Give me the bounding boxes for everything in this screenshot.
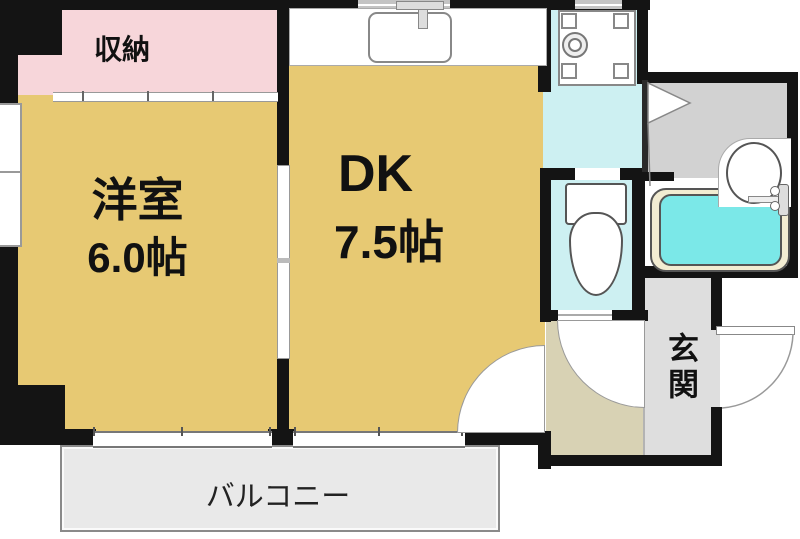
slider-tick xyxy=(212,91,214,101)
bathroom-door-swing xyxy=(645,78,697,190)
dk-size: 7.5帖 xyxy=(334,206,444,272)
wall-segment xyxy=(632,168,645,322)
pillar xyxy=(8,385,65,437)
window-tick xyxy=(93,427,95,436)
pan-corner xyxy=(561,13,577,29)
western-room-size: 6.0帖 xyxy=(25,224,250,285)
wall-segment xyxy=(711,277,722,330)
closet-sliding-door xyxy=(53,92,278,102)
wall-segment xyxy=(540,170,551,322)
kitchen-sink xyxy=(368,12,452,63)
kitchen-faucet xyxy=(418,9,428,29)
window-tick xyxy=(181,427,183,436)
wall-segment xyxy=(277,0,289,167)
drain-icon xyxy=(568,38,582,52)
wall-segment xyxy=(545,455,722,466)
balcony-label: バルコニー xyxy=(60,473,496,515)
pan-corner xyxy=(613,63,629,79)
closet-label: 収納 xyxy=(52,28,192,68)
pan-corner xyxy=(561,63,577,79)
window xyxy=(0,103,22,247)
slider-tick xyxy=(147,91,149,101)
window-mullion xyxy=(575,4,622,6)
wall-segment xyxy=(268,429,296,445)
faucet-knob xyxy=(770,201,780,211)
slider-tick xyxy=(82,91,84,101)
pan-corner xyxy=(613,13,629,29)
western-room-label: 洋室 xyxy=(25,164,250,230)
front-door-swing-arc xyxy=(714,332,796,412)
sliding-door-handle xyxy=(277,258,290,263)
faucet-knob xyxy=(770,186,780,196)
floorplan: 収納 洋室 6.0帖 DK 7.5帖 玄関 バルコニー xyxy=(0,0,800,539)
threshold-line xyxy=(558,314,612,316)
window-mullion xyxy=(0,171,20,173)
window-tick xyxy=(378,427,380,436)
window-tick xyxy=(269,427,271,436)
dk-label: DK xyxy=(338,144,413,204)
window-tick xyxy=(294,427,296,436)
doorway-opening xyxy=(575,168,620,180)
entrance-label: 玄関 xyxy=(658,332,703,404)
